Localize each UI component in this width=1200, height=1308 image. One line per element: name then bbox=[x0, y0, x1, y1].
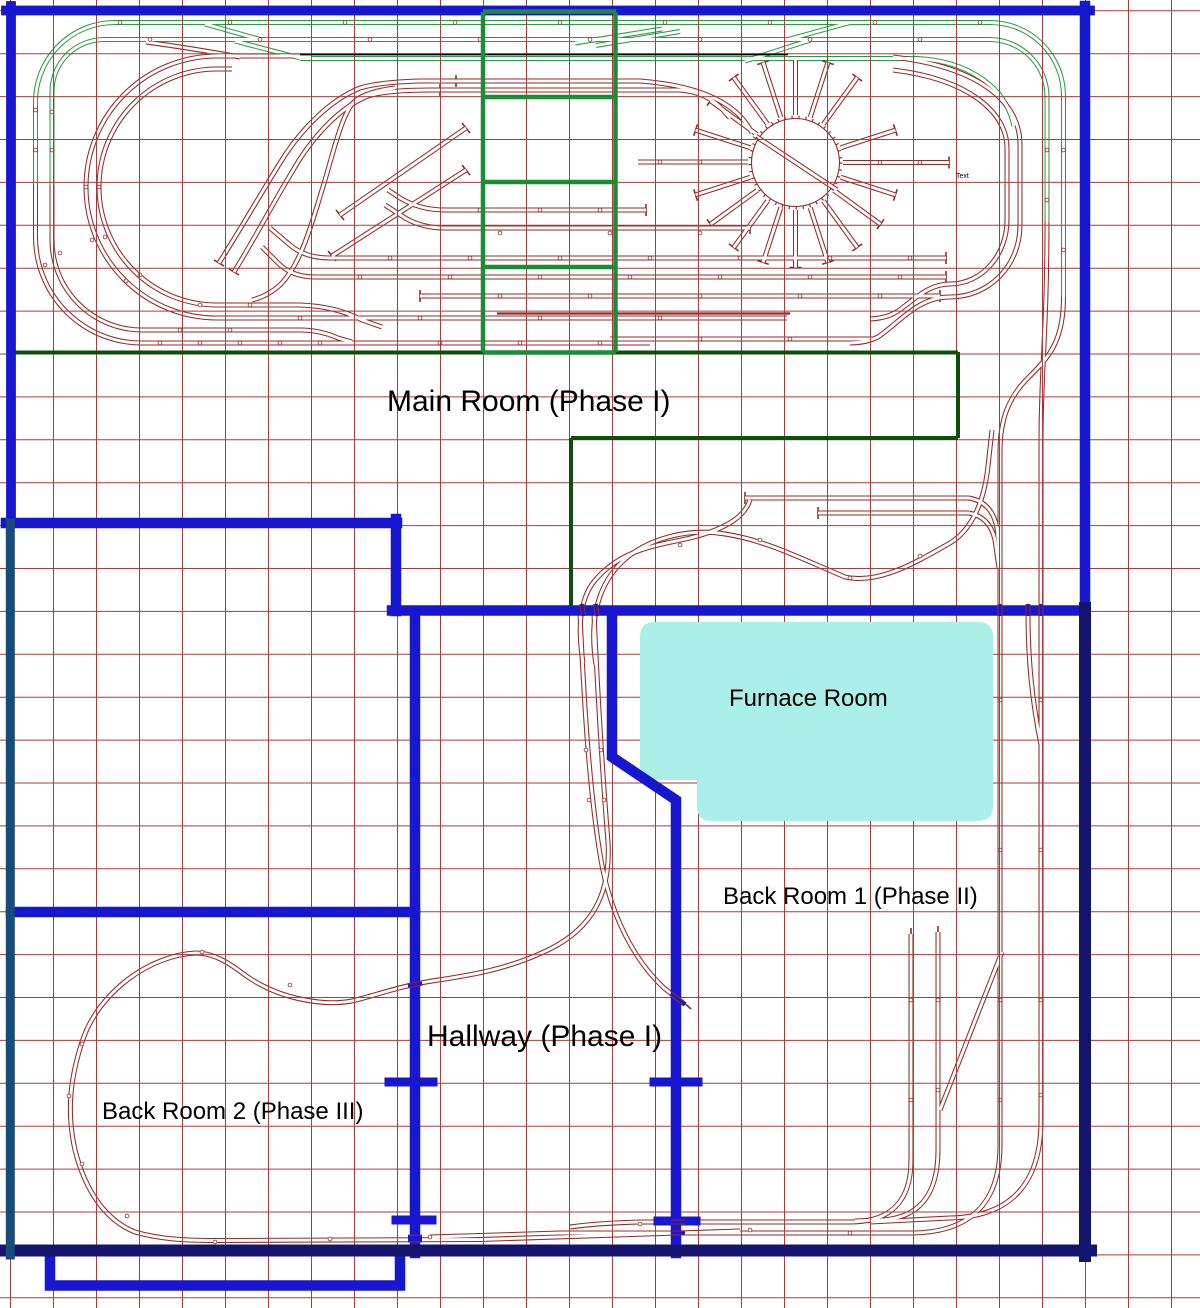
svg-text:Furnace Room: Furnace Room bbox=[729, 685, 888, 712]
svg-text:Main Room (Phase I): Main Room (Phase I) bbox=[387, 385, 670, 418]
svg-text:Back Room 1 (Phase II): Back Room 1 (Phase II) bbox=[723, 883, 978, 910]
svg-text:Text: Text bbox=[956, 173, 969, 180]
svg-text:Hallway (Phase I): Hallway (Phase I) bbox=[427, 1020, 662, 1053]
svg-text:Back Room 2 (Phase III): Back Room 2 (Phase III) bbox=[102, 1098, 363, 1125]
